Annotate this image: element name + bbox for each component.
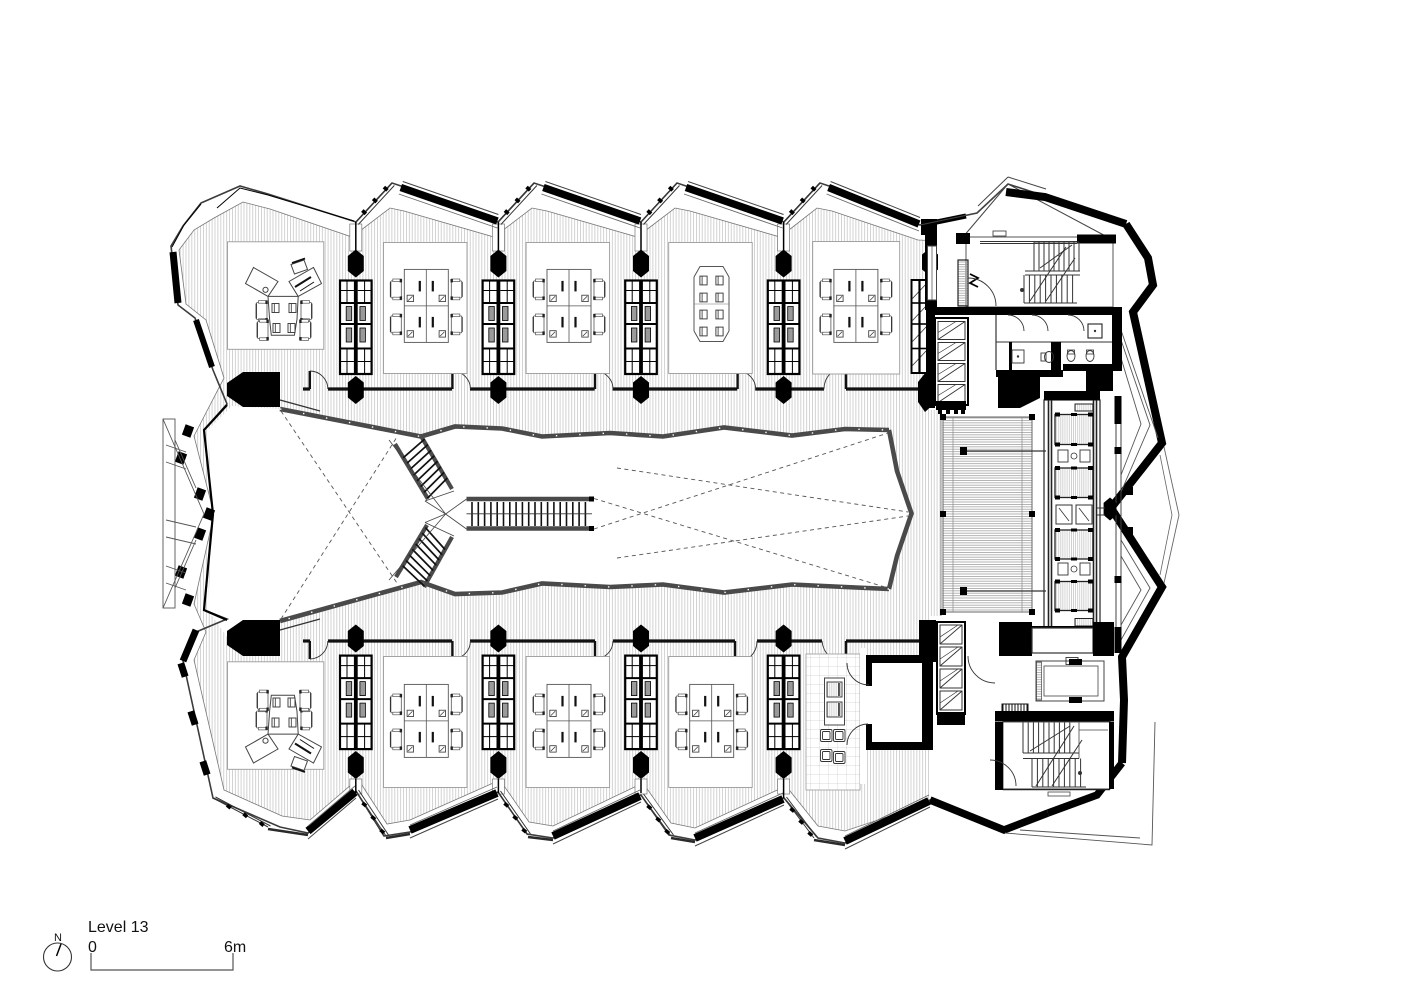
svg-text:Level 13: Level 13 — [88, 919, 149, 936]
svg-text:N: N — [54, 932, 62, 944]
svg-text:6m: 6m — [224, 939, 246, 956]
svg-text:0: 0 — [88, 939, 97, 956]
